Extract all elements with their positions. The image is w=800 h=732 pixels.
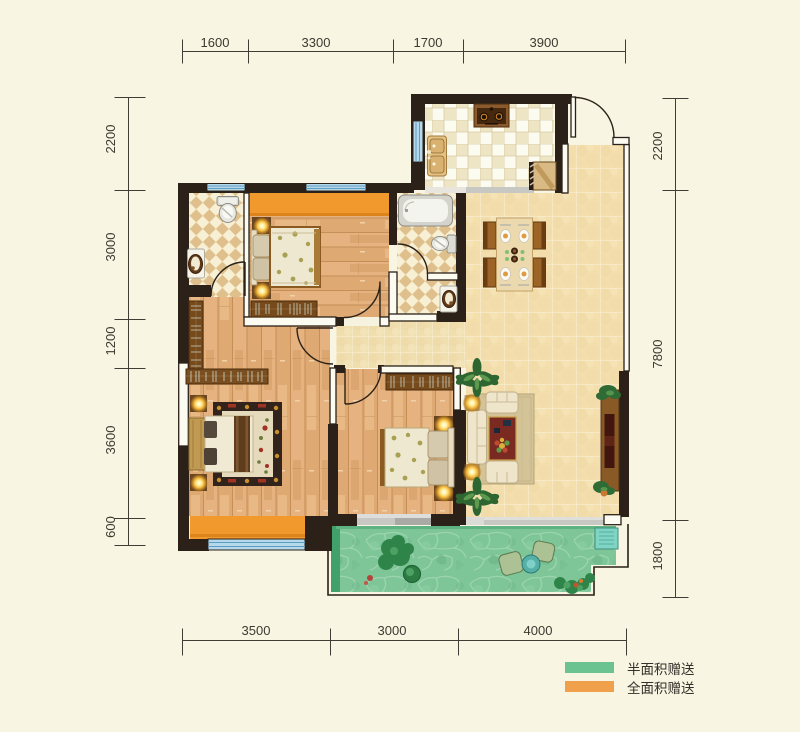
svg-text:半面积赠送: 半面积赠送: [627, 662, 695, 677]
svg-text:7800: 7800: [650, 340, 665, 369]
svg-text:3900: 3900: [530, 35, 559, 50]
svg-text:3500: 3500: [242, 623, 271, 638]
svg-text:2200: 2200: [650, 132, 665, 161]
svg-text:全面积赠送: 全面积赠送: [627, 680, 695, 696]
svg-text:1200: 1200: [103, 327, 118, 356]
svg-text:3300: 3300: [302, 35, 331, 50]
svg-text:600: 600: [103, 516, 118, 538]
svg-text:1600: 1600: [201, 35, 230, 50]
svg-text:3000: 3000: [103, 233, 118, 262]
svg-text:1700: 1700: [414, 35, 443, 50]
svg-text:1800: 1800: [650, 542, 665, 571]
svg-text:2200: 2200: [103, 125, 118, 154]
svg-text:3000: 3000: [378, 623, 407, 638]
svg-text:3600: 3600: [103, 426, 118, 455]
svg-text:4000: 4000: [524, 623, 553, 638]
